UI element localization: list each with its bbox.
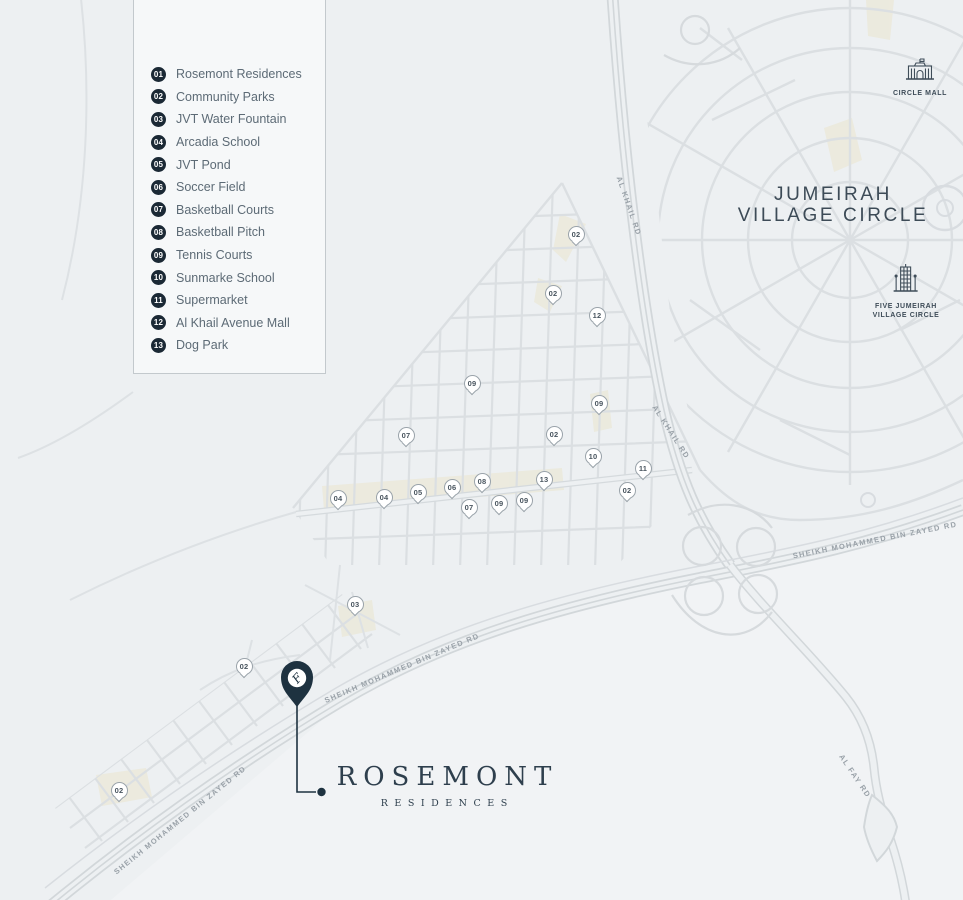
legend-label-10: Sunmarke School: [176, 271, 275, 285]
logo-subtitle: RESIDENCES: [330, 798, 559, 809]
legend-item-09: 09Tennis Courts: [151, 244, 325, 267]
legend-label-12: Al Khail Avenue Mall: [176, 316, 290, 330]
legend-label-05: JVT Pond: [176, 158, 231, 172]
legend-label-02: Community Parks: [176, 90, 275, 104]
legend-label-03: JVT Water Fountain: [176, 112, 286, 126]
pin-leader-dot: [317, 788, 325, 796]
legend-label-09: Tennis Courts: [176, 248, 252, 262]
legend-item-06: 06Soccer Field: [151, 176, 325, 199]
legend-item-02: 02Community Parks: [151, 86, 325, 109]
legend-label-06: Soccer Field: [176, 180, 245, 194]
legend-badge-12: 12: [151, 315, 166, 330]
pin-leader-line: [297, 705, 316, 792]
legend-item-07: 07Basketball Courts: [151, 199, 325, 222]
legend-badge-13: 13: [151, 338, 166, 353]
legend-item-11: 11Supermarket: [151, 289, 325, 312]
legend-label-07: Basketball Courts: [176, 203, 274, 217]
legend-badge-10: 10: [151, 270, 166, 285]
legend-badge-11: 11: [151, 293, 166, 308]
legend-item-12: 12Al Khail Avenue Mall: [151, 312, 325, 335]
legend-label-13: Dog Park: [176, 338, 228, 352]
legend-label-01: Rosemont Residences: [176, 67, 302, 81]
legend-badge-02: 02: [151, 89, 166, 104]
legend-item-13: 13Dog Park: [151, 334, 325, 357]
legend-badge-08: 08: [151, 225, 166, 240]
legend-badge-01: 01: [151, 67, 166, 82]
legend-item-01: 01Rosemont Residences: [151, 63, 325, 86]
legend-items: 01Rosemont Residences02Community Parks03…: [134, 0, 325, 357]
legend-label-04: Arcadia School: [176, 135, 260, 149]
legend-badge-04: 04: [151, 135, 166, 150]
legend-badge-05: 05: [151, 157, 166, 172]
legend-item-08: 08Basketball Pitch: [151, 221, 325, 244]
legend-label-11: Supermarket: [176, 293, 248, 307]
legend-item-03: 03JVT Water Fountain: [151, 108, 325, 131]
rosemont-logo: ROSEMONT RESIDENCES: [330, 762, 559, 809]
legend-item-05: 05JVT Pond: [151, 153, 325, 176]
legend-item-10: 10Sunmarke School: [151, 266, 325, 289]
legend-badge-09: 09: [151, 248, 166, 263]
legend-badge-03: 03: [151, 112, 166, 127]
legend-label-08: Basketball Pitch: [176, 225, 265, 239]
legend-badge-07: 07: [151, 202, 166, 217]
legend-panel: 01Rosemont Residences02Community Parks03…: [133, 0, 326, 374]
map-canvas: AL KHAIL RDAL KHAIL RDSHEIKH MOHAMMED BI…: [0, 0, 963, 900]
legend-badge-06: 06: [151, 180, 166, 195]
legend-item-04: 04Arcadia School: [151, 131, 325, 154]
logo-name: ROSEMONT: [330, 762, 559, 792]
